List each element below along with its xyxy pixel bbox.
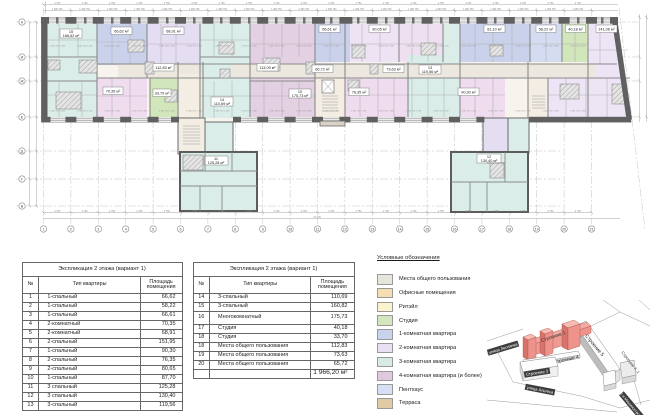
svg-text:4 750: 4 750 xyxy=(465,210,472,213)
svg-text:66,61 м²: 66,61 м² xyxy=(322,28,337,32)
svg-text:90,05 м²: 90,05 м² xyxy=(372,28,387,32)
svg-text:1 480 750: 1 480 750 xyxy=(381,8,392,11)
svg-text:4 750: 4 750 xyxy=(273,2,280,5)
svg-text:1 480 750: 1 480 750 xyxy=(161,8,172,11)
svg-text:4 750: 4 750 xyxy=(301,2,308,5)
svg-text:21: 21 xyxy=(590,227,594,231)
svg-text:4 750: 4 750 xyxy=(410,210,417,213)
svg-text:4 750: 4 750 xyxy=(219,210,226,213)
svg-text:улица Альтека: улица Альтека xyxy=(526,385,554,395)
svg-text:4 750: 4 750 xyxy=(136,2,143,5)
svg-text:4: 4 xyxy=(125,227,127,231)
svg-text:2: 2 xyxy=(70,227,72,231)
svg-text:1 480 750: 1 480 750 xyxy=(134,8,145,11)
svg-text:1 480 750 1 480: 1 480 750 1 480 xyxy=(460,46,477,48)
svg-text:76,35 м²: 76,35 м² xyxy=(352,91,367,95)
svg-text:1 480 750 1 480: 1 480 750 1 480 xyxy=(131,111,148,113)
svg-text:1 480 750 1 480: 1 480 750 1 480 xyxy=(159,46,176,48)
svg-text:1 480 750 1 480: 1 480 750 1 480 xyxy=(570,111,587,113)
svg-text:1 480 750: 1 480 750 xyxy=(326,8,337,11)
svg-text:4 750: 4 750 xyxy=(136,210,143,213)
svg-text:12: 12 xyxy=(343,227,347,231)
svg-text:4 750: 4 750 xyxy=(383,2,390,5)
svg-text:110,69 м²: 110,69 м² xyxy=(214,102,231,106)
svg-text:4 750: 4 750 xyxy=(493,210,500,213)
svg-text:9: 9 xyxy=(262,227,264,231)
svg-text:1 480 750: 1 480 750 xyxy=(408,8,419,11)
svg-text:1 480 750: 1 480 750 xyxy=(518,8,529,11)
svg-text:1 480 750: 1 480 750 xyxy=(52,8,63,11)
svg-text:90,30 м²: 90,30 м² xyxy=(461,91,476,95)
svg-text:4 750: 4 750 xyxy=(219,2,226,5)
svg-text:113,09 м²: 113,09 м² xyxy=(259,66,276,70)
svg-text:1 480 750: 1 480 750 xyxy=(435,8,446,11)
svg-text:19: 19 xyxy=(535,227,539,231)
svg-text:68,91 м²: 68,91 м² xyxy=(166,30,181,34)
svg-text:15: 15 xyxy=(425,227,429,231)
svg-text:4 750: 4 750 xyxy=(246,2,253,5)
svg-text:4 750: 4 750 xyxy=(109,210,116,213)
svg-text:4 750: 4 750 xyxy=(520,210,527,213)
svg-text:1 480 750 1 480: 1 480 750 1 480 xyxy=(131,46,148,48)
svg-text:4 750: 4 750 xyxy=(191,2,198,5)
svg-text:1 480 750 1 480: 1 480 750 1 480 xyxy=(542,111,559,113)
svg-text:1 480 750 1 480: 1 480 750 1 480 xyxy=(488,46,505,48)
svg-text:1 480 750 1 480: 1 480 750 1 480 xyxy=(77,46,94,48)
svg-text:4 750: 4 750 xyxy=(82,210,89,213)
svg-text:4 750: 4 750 xyxy=(547,210,554,213)
svg-text:4 750: 4 750 xyxy=(164,210,171,213)
svg-text:1 480 750 1 480: 1 480 750 1 480 xyxy=(241,111,258,113)
svg-text:1 480 750: 1 480 750 xyxy=(271,8,282,11)
svg-text:40,18 м²: 40,18 м² xyxy=(568,28,583,32)
svg-text:1 480 750 1 480: 1 480 750 1 480 xyxy=(49,46,66,48)
svg-text:3: 3 xyxy=(97,227,99,231)
svg-text:4 750: 4 750 xyxy=(547,2,554,5)
svg-text:4 750: 4 750 xyxy=(328,2,335,5)
svg-text:1 480 750: 1 480 750 xyxy=(353,8,364,11)
svg-text:1 480 750 1 480: 1 480 750 1 480 xyxy=(378,46,395,48)
svg-text:1 480 750: 1 480 750 xyxy=(490,8,501,11)
svg-text:1 480 750 1 480: 1 480 750 1 480 xyxy=(186,111,203,113)
svg-text:Г: Г xyxy=(21,177,23,181)
svg-text:1 480 750: 1 480 750 xyxy=(189,8,200,11)
svg-text:1 480 750: 1 480 750 xyxy=(244,8,255,11)
svg-text:1 480 750 1 480: 1 480 750 1 480 xyxy=(104,111,121,113)
svg-text:1 480 750: 1 480 750 xyxy=(298,8,309,11)
svg-text:17: 17 xyxy=(480,227,484,231)
svg-text:4 750: 4 750 xyxy=(575,2,582,5)
svg-text:4 750: 4 750 xyxy=(438,210,445,213)
svg-text:73,63 м²: 73,63 м² xyxy=(386,68,401,72)
svg-text:4 750: 4 750 xyxy=(191,210,198,213)
svg-text:81,10 м²: 81,10 м² xyxy=(487,28,502,32)
svg-text:1 480 750 1 480: 1 480 750 1 480 xyxy=(104,46,121,48)
svg-text:6: 6 xyxy=(180,227,182,231)
svg-text:1 480 750 1 480: 1 480 750 1 480 xyxy=(405,46,422,48)
svg-text:И: И xyxy=(21,55,24,59)
svg-text:4 750: 4 750 xyxy=(520,2,527,5)
svg-text:7: 7 xyxy=(207,227,209,231)
svg-text:1 480 750 1 480: 1 480 750 1 480 xyxy=(488,111,505,113)
svg-text:33,70 м²: 33,70 м² xyxy=(155,92,170,96)
svg-text:1 480 750 1 480: 1 480 750 1 480 xyxy=(515,46,532,48)
svg-text:20: 20 xyxy=(562,227,566,231)
svg-text:13: 13 xyxy=(370,227,374,231)
svg-text:4 750: 4 750 xyxy=(328,210,335,213)
svg-text:125,28 м²: 125,28 м² xyxy=(208,161,225,165)
svg-text:4 750: 4 750 xyxy=(356,210,363,213)
svg-text:66,62 м²: 66,62 м² xyxy=(114,30,129,34)
svg-text:4 750: 4 750 xyxy=(301,210,308,213)
svg-text:1 480 750 1 480: 1 480 750 1 480 xyxy=(268,111,285,113)
svg-text:1 480 750: 1 480 750 xyxy=(572,8,583,11)
svg-text:1: 1 xyxy=(43,227,45,231)
svg-text:166,62 м²: 166,62 м² xyxy=(63,34,80,38)
svg-text:1 480 750: 1 480 750 xyxy=(107,8,118,11)
svg-text:8: 8 xyxy=(234,227,236,231)
svg-text:1 480 750 1 480: 1 480 750 1 480 xyxy=(296,46,313,48)
svg-text:58,22 м²: 58,22 м² xyxy=(539,28,554,32)
svg-text:4 750: 4 750 xyxy=(493,2,500,5)
svg-text:1 480 750 1 480: 1 480 750 1 480 xyxy=(351,111,368,113)
svg-text:119,56 м²: 119,56 м² xyxy=(422,70,439,74)
svg-text:1 480 750 1 480: 1 480 750 1 480 xyxy=(405,111,422,113)
svg-text:175,73 м²: 175,73 м² xyxy=(292,94,309,98)
svg-text:1 480 750 1 480: 1 480 750 1 480 xyxy=(241,46,258,48)
svg-text:1 480 750 1 480: 1 480 750 1 480 xyxy=(323,111,340,113)
svg-text:1 480 750 1 480: 1 480 750 1 480 xyxy=(433,111,450,113)
svg-text:47 430: 47 430 xyxy=(313,216,321,219)
svg-text:1 480 750 1 480: 1 480 750 1 480 xyxy=(323,46,340,48)
svg-text:141,06 м²: 141,06 м² xyxy=(598,28,615,32)
svg-text:4 750: 4 750 xyxy=(82,2,89,5)
svg-text:1 480 750: 1 480 750 xyxy=(463,8,474,11)
svg-text:4 750: 4 750 xyxy=(273,210,280,213)
svg-text:1 480 750 1 480: 1 480 750 1 480 xyxy=(542,46,559,48)
svg-text:4 750: 4 750 xyxy=(54,2,61,5)
svg-text:1 480 750 1 480: 1 480 750 1 480 xyxy=(268,46,285,48)
svg-text:1 480 750 1 480: 1 480 750 1 480 xyxy=(460,111,477,113)
svg-text:10: 10 xyxy=(288,227,292,231)
svg-text:16: 16 xyxy=(453,227,457,231)
svg-text:1 480 750 1 480: 1 480 750 1 480 xyxy=(378,111,395,113)
svg-text:18: 18 xyxy=(507,227,511,231)
svg-text:4 750: 4 750 xyxy=(356,2,363,5)
svg-text:4 750: 4 750 xyxy=(383,210,390,213)
svg-text:4 750: 4 750 xyxy=(54,210,61,213)
svg-text:11: 11 xyxy=(316,227,320,231)
svg-text:4 750: 4 750 xyxy=(438,2,445,5)
svg-text:5: 5 xyxy=(152,227,154,231)
svg-text:1 480 750 1 480: 1 480 750 1 480 xyxy=(49,111,66,113)
svg-text:1 480 750 1 480: 1 480 750 1 480 xyxy=(77,111,94,113)
svg-text:1 480 750 1 480: 1 480 750 1 480 xyxy=(515,111,532,113)
svg-text:1 480 750: 1 480 750 xyxy=(79,8,90,11)
svg-text:4 750: 4 750 xyxy=(109,2,116,5)
svg-text:1 480 750 1 480: 1 480 750 1 480 xyxy=(433,46,450,48)
svg-text:112,83 м²: 112,83 м² xyxy=(155,66,172,70)
svg-text:1 480 750 1 480: 1 480 750 1 480 xyxy=(214,111,231,113)
svg-text:2-я Машиностроения: 2-я Машиностроения xyxy=(619,392,646,415)
svg-text:66,72 м²: 66,72 м² xyxy=(315,68,330,72)
svg-text:улица Леснянка: улица Леснянка xyxy=(488,341,519,355)
svg-text:1 480 750 1 480: 1 480 750 1 480 xyxy=(214,46,231,48)
svg-text:1 480 750 1 480: 1 480 750 1 480 xyxy=(570,46,587,48)
svg-text:1 480 750 1 480: 1 480 750 1 480 xyxy=(296,111,313,113)
svg-text:70,35 м²: 70,35 м² xyxy=(106,90,121,94)
svg-text:14: 14 xyxy=(398,227,402,231)
svg-text:4 750: 4 750 xyxy=(410,2,417,5)
svg-text:1 480 750 1 480: 1 480 750 1 480 xyxy=(159,111,176,113)
svg-text:1 480 750 1 480: 1 480 750 1 480 xyxy=(186,46,203,48)
svg-text:4 750: 4 750 xyxy=(465,2,472,5)
svg-text:4 750: 4 750 xyxy=(575,210,582,213)
svg-text:1 480 750: 1 480 750 xyxy=(545,8,556,11)
svg-text:1 480 750: 1 480 750 xyxy=(216,8,227,11)
svg-text:1 480 750 1 480: 1 480 750 1 480 xyxy=(351,46,368,48)
svg-text:4 750: 4 750 xyxy=(164,2,171,5)
svg-text:4 750: 4 750 xyxy=(246,210,253,213)
